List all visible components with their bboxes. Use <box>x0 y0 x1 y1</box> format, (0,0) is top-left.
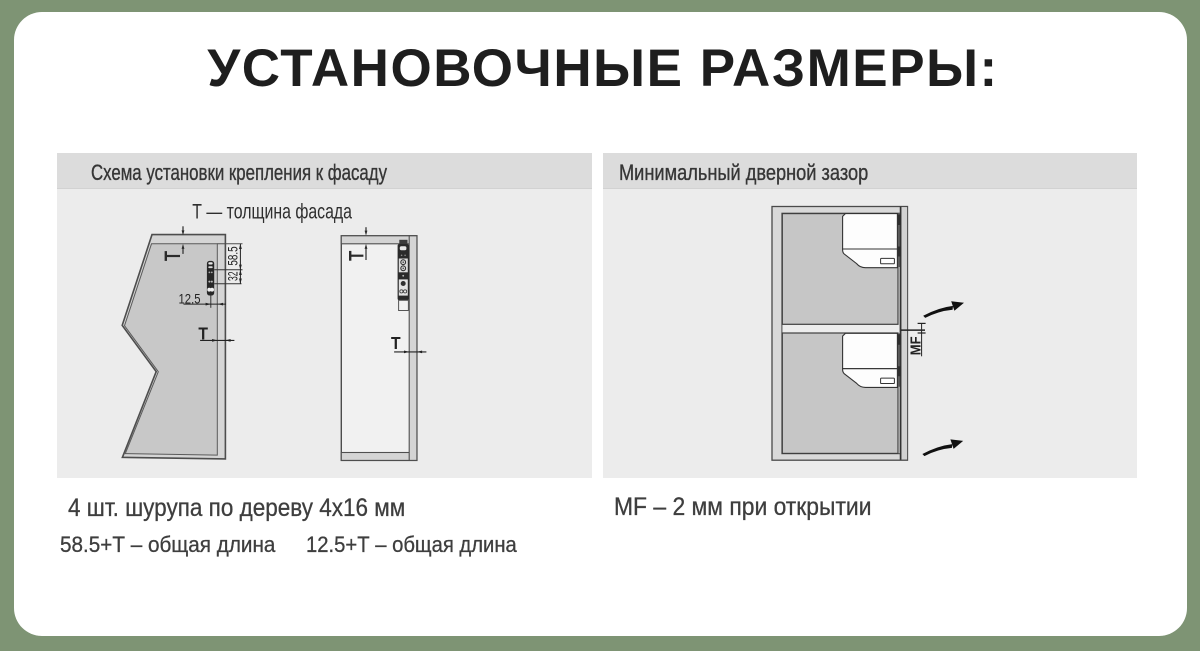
svg-text:Т: Т <box>391 333 401 353</box>
svg-text:32: 32 <box>224 271 240 281</box>
svg-text:MF: MF <box>909 336 925 355</box>
svg-text:58.5: 58.5 <box>224 246 240 265</box>
svg-text:Т — толщина фасада: Т — толщина фасада <box>192 200 352 223</box>
